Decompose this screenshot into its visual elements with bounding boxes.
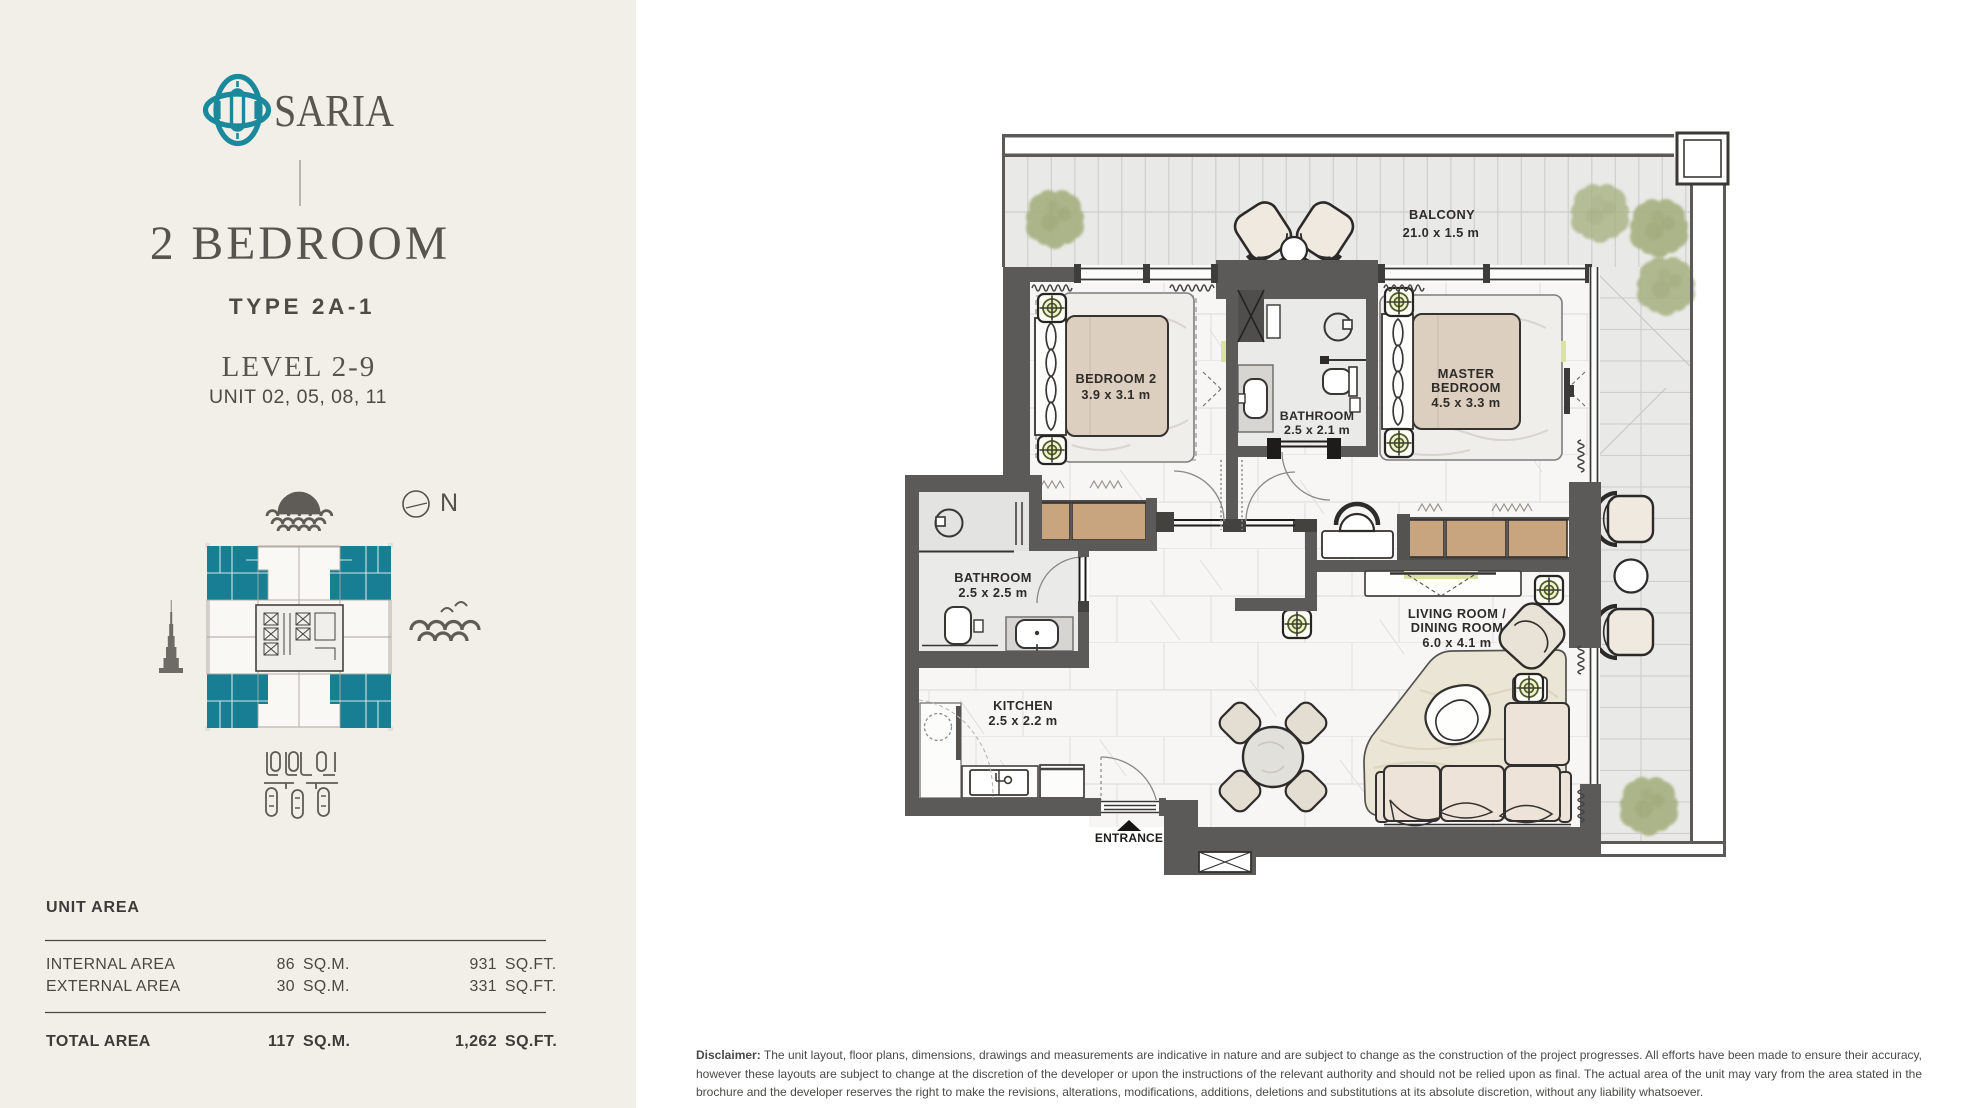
svg-text:SQ.M.: SQ.M.: [303, 956, 350, 973]
svg-text:DINING ROOM: DINING ROOM: [1411, 620, 1504, 635]
svg-text:INTERNAL AREA: INTERNAL AREA: [46, 956, 175, 973]
svg-text:SQ.FT.: SQ.FT.: [505, 978, 557, 995]
svg-text:BEDROOM: BEDROOM: [1431, 380, 1501, 395]
svg-text:1,262: 1,262: [455, 1033, 497, 1050]
svg-text:MASTER: MASTER: [1438, 366, 1494, 381]
svg-text:ENTRANCE: ENTRANCE: [1095, 831, 1163, 845]
svg-text:3.9 x 3.1 m: 3.9 x 3.1 m: [1081, 387, 1150, 402]
svg-text:TYPE 2A-1: TYPE 2A-1: [229, 294, 375, 319]
svg-text:BALCONY: BALCONY: [1409, 207, 1475, 222]
svg-text:LEVEL 2-9: LEVEL 2-9: [222, 351, 377, 383]
svg-text:BATHROOM: BATHROOM: [954, 570, 1032, 585]
svg-text:21.0 x 1.5 m: 21.0 x 1.5 m: [1403, 225, 1480, 240]
svg-text:2.5 x 2.5 m: 2.5 x 2.5 m: [958, 585, 1027, 600]
svg-text:SQ.M.: SQ.M.: [303, 978, 350, 995]
svg-text:2.5 x 2.1 m: 2.5 x 2.1 m: [1284, 423, 1350, 437]
svg-text:2 BEDROOM: 2 BEDROOM: [150, 218, 450, 270]
svg-text:LIVING ROOM /: LIVING ROOM /: [1408, 606, 1506, 621]
svg-text:6.0 x 4.1 m: 6.0 x 4.1 m: [1422, 635, 1491, 650]
svg-text:UNIT AREA: UNIT AREA: [46, 899, 140, 916]
svg-text:SQ.M.: SQ.M.: [303, 1033, 350, 1050]
svg-text:BEDROOM 2: BEDROOM 2: [1075, 371, 1156, 386]
svg-text:931: 931: [469, 956, 497, 973]
svg-text:86: 86: [277, 956, 295, 973]
svg-text:2.5 x 2.2 m: 2.5 x 2.2 m: [988, 713, 1057, 728]
svg-text:331: 331: [469, 978, 497, 995]
svg-text:SARIA: SARIA: [274, 85, 394, 136]
svg-text:SQ.FT.: SQ.FT.: [505, 1033, 557, 1050]
svg-text:BATHROOM: BATHROOM: [1280, 409, 1354, 423]
svg-text:117: 117: [268, 1033, 295, 1050]
svg-text:KITCHEN: KITCHEN: [993, 698, 1053, 713]
svg-text:SQ.FT.: SQ.FT.: [505, 956, 557, 973]
svg-text:EXTERNAL AREA: EXTERNAL AREA: [46, 978, 181, 995]
svg-text:N: N: [440, 489, 458, 517]
svg-text:30: 30: [277, 978, 295, 995]
svg-text:TOTAL AREA: TOTAL AREA: [46, 1033, 151, 1050]
svg-text:4.5 x 3.3 m: 4.5 x 3.3 m: [1431, 395, 1500, 410]
svg-text:UNIT 02, 05, 08, 11: UNIT 02, 05, 08, 11: [209, 386, 387, 408]
